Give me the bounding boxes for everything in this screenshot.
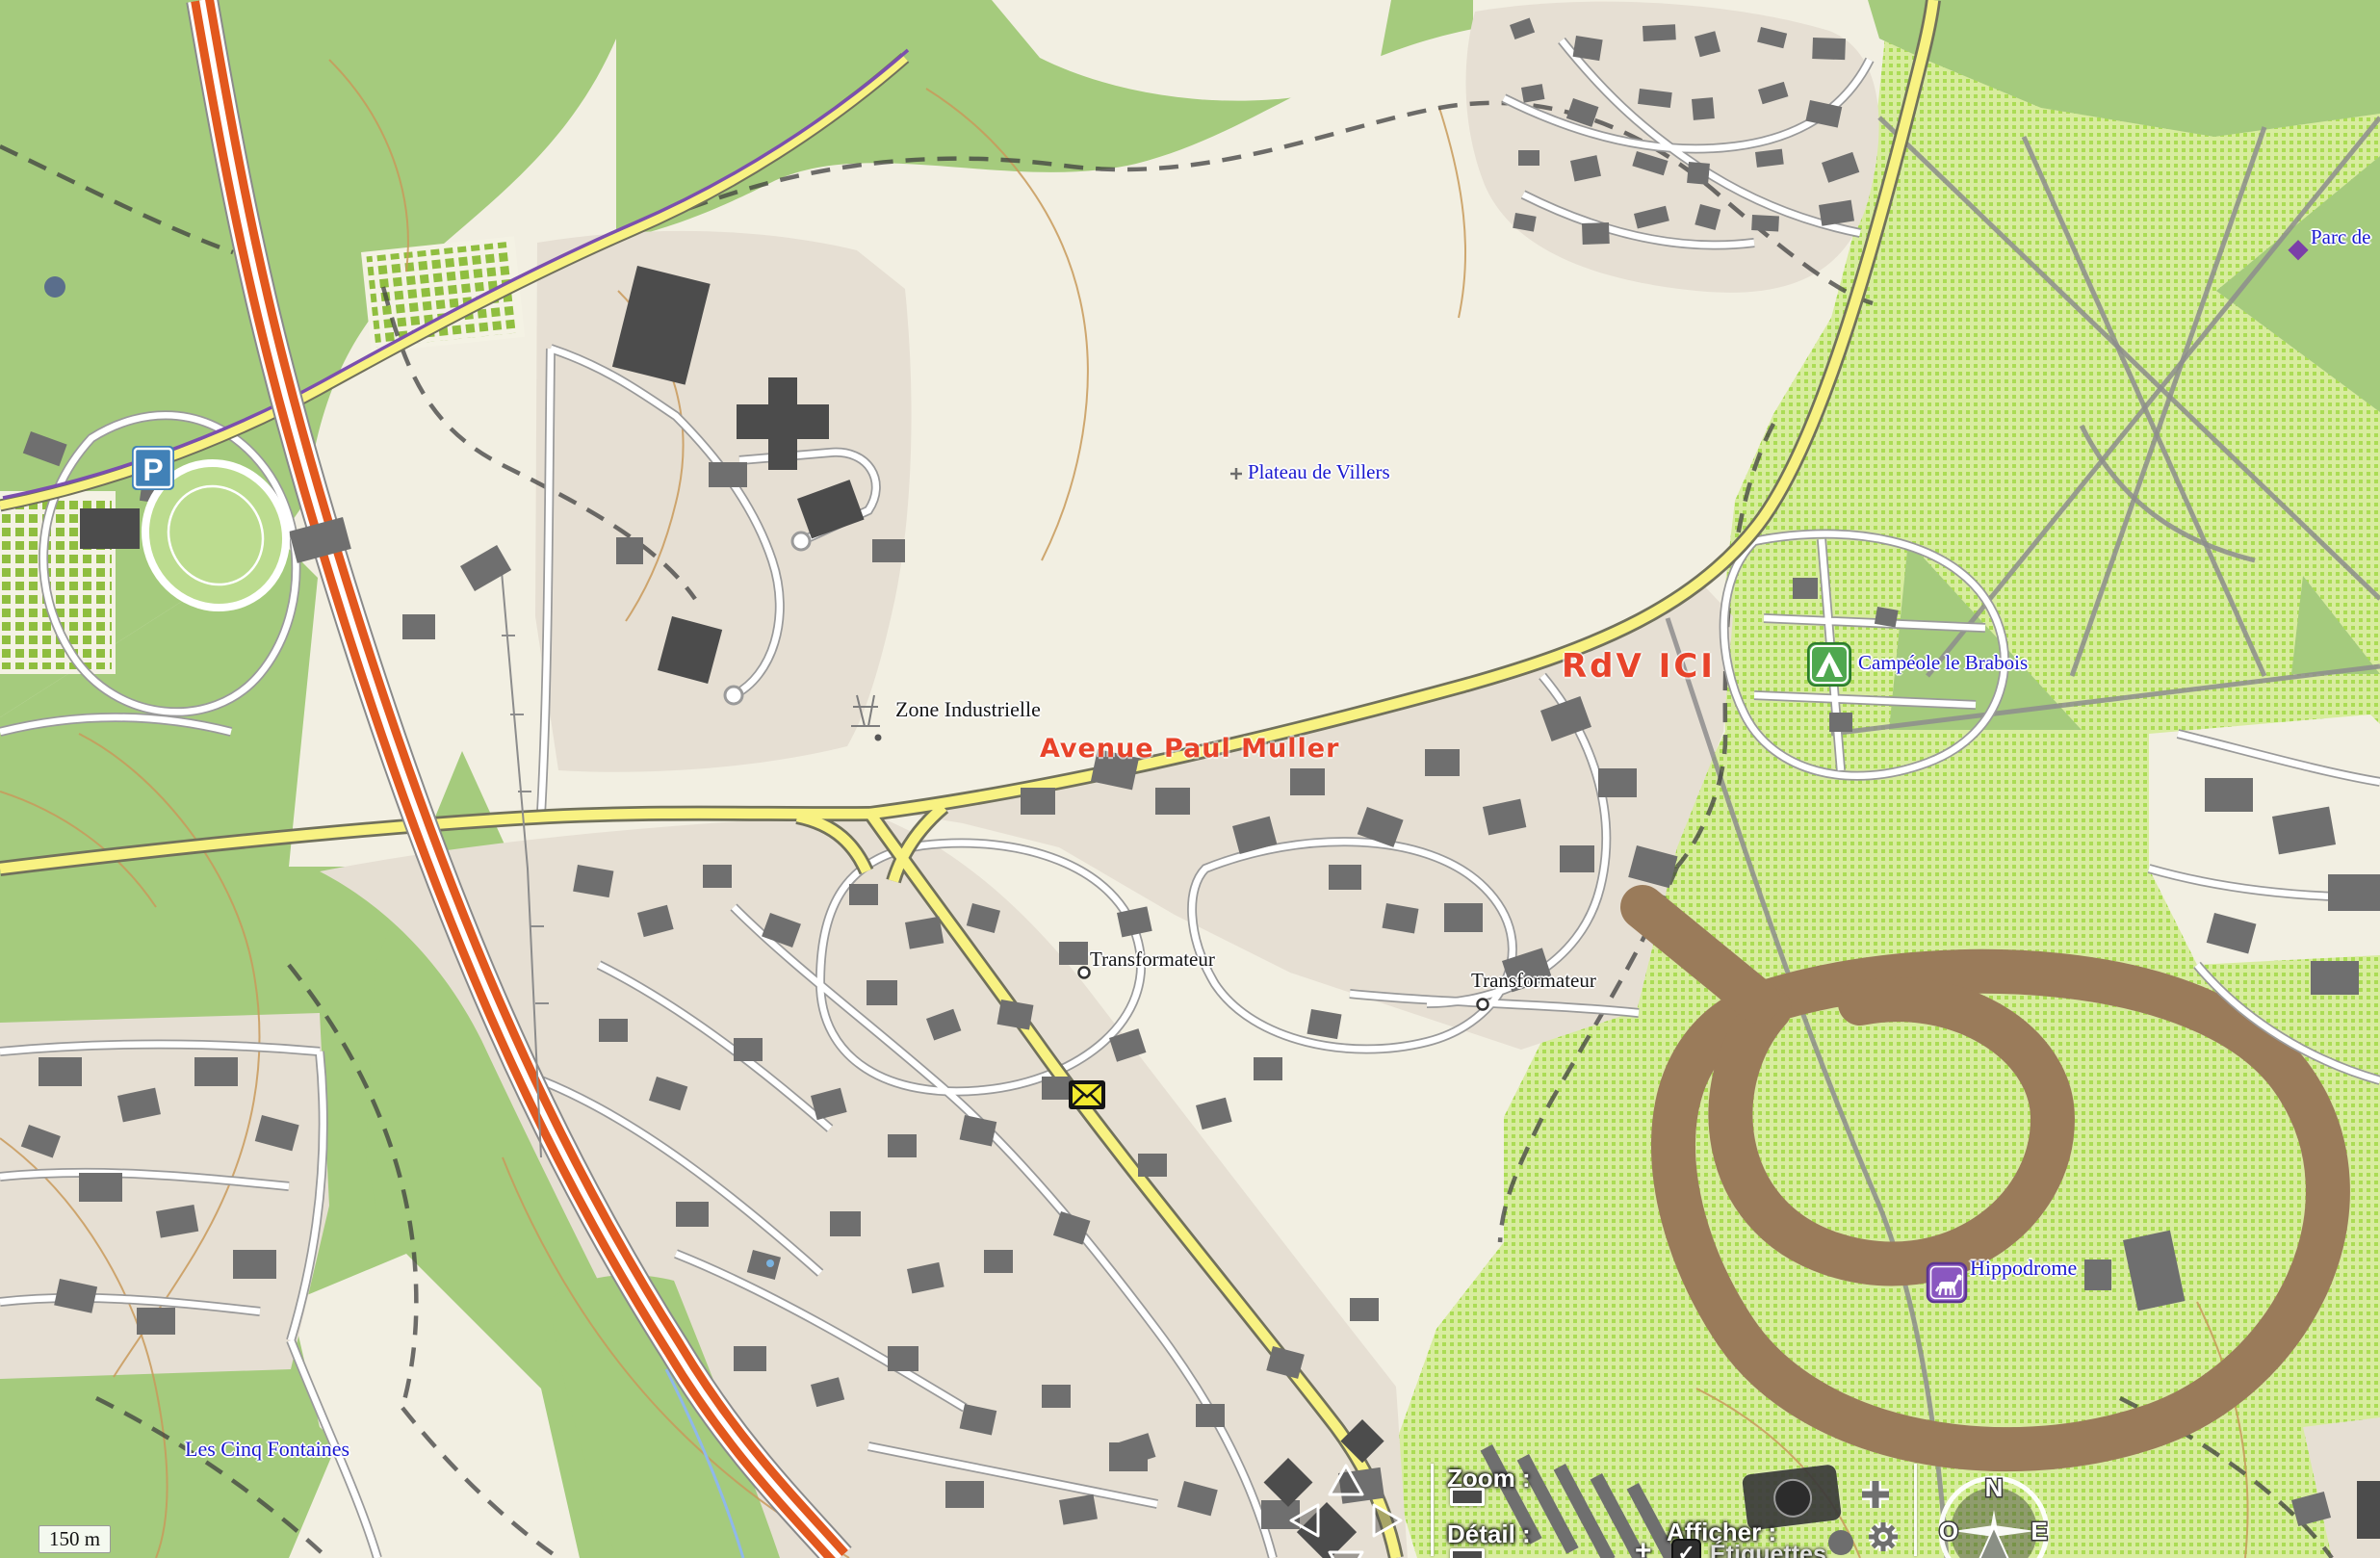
- building: [1812, 38, 1846, 60]
- building: [616, 537, 643, 564]
- pond: [44, 276, 65, 298]
- compass-west-label: O: [1939, 1517, 1958, 1545]
- building: [676, 1202, 709, 1227]
- building: [1042, 1385, 1071, 1408]
- building: [1306, 1009, 1341, 1039]
- building: [1425, 749, 1460, 776]
- building: [888, 1134, 917, 1157]
- building: [1329, 865, 1361, 890]
- building: [233, 1250, 276, 1279]
- building: [1290, 768, 1325, 795]
- building: [1254, 1057, 1282, 1080]
- detail-minus-button[interactable]: [1450, 1548, 1485, 1558]
- zone-marker: [875, 735, 882, 741]
- building: [1138, 1154, 1167, 1177]
- building: [402, 614, 435, 639]
- spring-dot: [766, 1259, 774, 1267]
- pan-right-button[interactable]: [1374, 1505, 1401, 1536]
- building: [849, 884, 878, 905]
- building: [2311, 961, 2359, 995]
- building: [1350, 1298, 1379, 1321]
- building: [734, 1038, 763, 1061]
- pan-up-button[interactable]: [1330, 1466, 1362, 1494]
- building: [1518, 150, 1539, 166]
- building: [1109, 1442, 1148, 1471]
- building: [79, 1173, 122, 1202]
- building: [2084, 1259, 2111, 1290]
- building: [194, 1057, 238, 1086]
- building: [830, 1211, 861, 1236]
- building: [1598, 768, 1637, 797]
- transformer-marker-1: [1079, 968, 1090, 978]
- building: [888, 1346, 918, 1371]
- pan-left-button[interactable]: [1291, 1505, 1318, 1536]
- building: [599, 1019, 628, 1042]
- building: [2357, 1481, 2380, 1539]
- zoom-out-button[interactable]: [1450, 1488, 1485, 1506]
- controls-divider-right: [1914, 1464, 1917, 1556]
- zoom-slider-knob[interactable]: [1772, 1477, 1815, 1520]
- map-canvas[interactable]: P: [0, 0, 2380, 1558]
- parking-letter: P: [142, 453, 163, 487]
- building: [768, 377, 797, 470]
- building: [2328, 874, 2380, 911]
- building: [1692, 97, 1715, 120]
- compass[interactable]: N O E: [1931, 1469, 2057, 1558]
- compass-north-label: N: [1985, 1473, 2004, 1502]
- parking-icon: P: [132, 446, 174, 490]
- detail-plus-button[interactable]: +: [1635, 1535, 1652, 1558]
- transformer-marker-2: [1478, 1000, 1488, 1010]
- building: [80, 508, 140, 549]
- building: [1755, 149, 1784, 168]
- building: [1643, 24, 1676, 41]
- building: [1444, 903, 1483, 932]
- etiquettes-checkbox[interactable]: ✓: [1671, 1539, 1701, 1558]
- building: [2205, 778, 2253, 812]
- pan-down-button[interactable]: [1330, 1552, 1362, 1558]
- map-viewer: P Plateau de Villers Zone Industrielle T…: [0, 0, 2380, 1558]
- scale-bar: 150 m: [39, 1525, 111, 1553]
- mail-icon: [1069, 1080, 1105, 1109]
- building: [1875, 607, 1899, 628]
- building: [1573, 36, 1603, 61]
- detail-label: Détail :: [1447, 1519, 1531, 1549]
- controls-divider-left: [1431, 1464, 1434, 1556]
- building: [1042, 1077, 1071, 1100]
- building: [1687, 162, 1710, 185]
- gear-icon[interactable]: [1866, 1519, 1901, 1554]
- building: [945, 1481, 984, 1508]
- building: [1560, 845, 1594, 872]
- building: [1829, 713, 1852, 732]
- compass-east-label: E: [2031, 1517, 2047, 1545]
- building: [1021, 788, 1055, 815]
- building: [1751, 215, 1779, 231]
- building: [1059, 942, 1088, 965]
- building: [703, 865, 732, 888]
- building: [1196, 1404, 1225, 1427]
- checkbox-check-icon: ✓: [1677, 1541, 1694, 1558]
- building: [39, 1057, 82, 1086]
- etiquettes-label: Étiquettes: [1710, 1541, 1826, 1558]
- building: [1582, 222, 1610, 245]
- building: [1793, 578, 1818, 599]
- zoom-in-button[interactable]: [1858, 1477, 1893, 1512]
- building: [734, 1346, 766, 1371]
- map-dot: [1828, 1530, 1853, 1555]
- building: [984, 1250, 1013, 1273]
- building: [867, 980, 897, 1005]
- building: [1155, 788, 1190, 815]
- horse-icon: [1927, 1263, 1966, 1302]
- building: [709, 462, 747, 487]
- building: [872, 539, 905, 562]
- building: [137, 1308, 175, 1335]
- pan-control: [1283, 1460, 1409, 1558]
- camping-icon: [1808, 643, 1850, 686]
